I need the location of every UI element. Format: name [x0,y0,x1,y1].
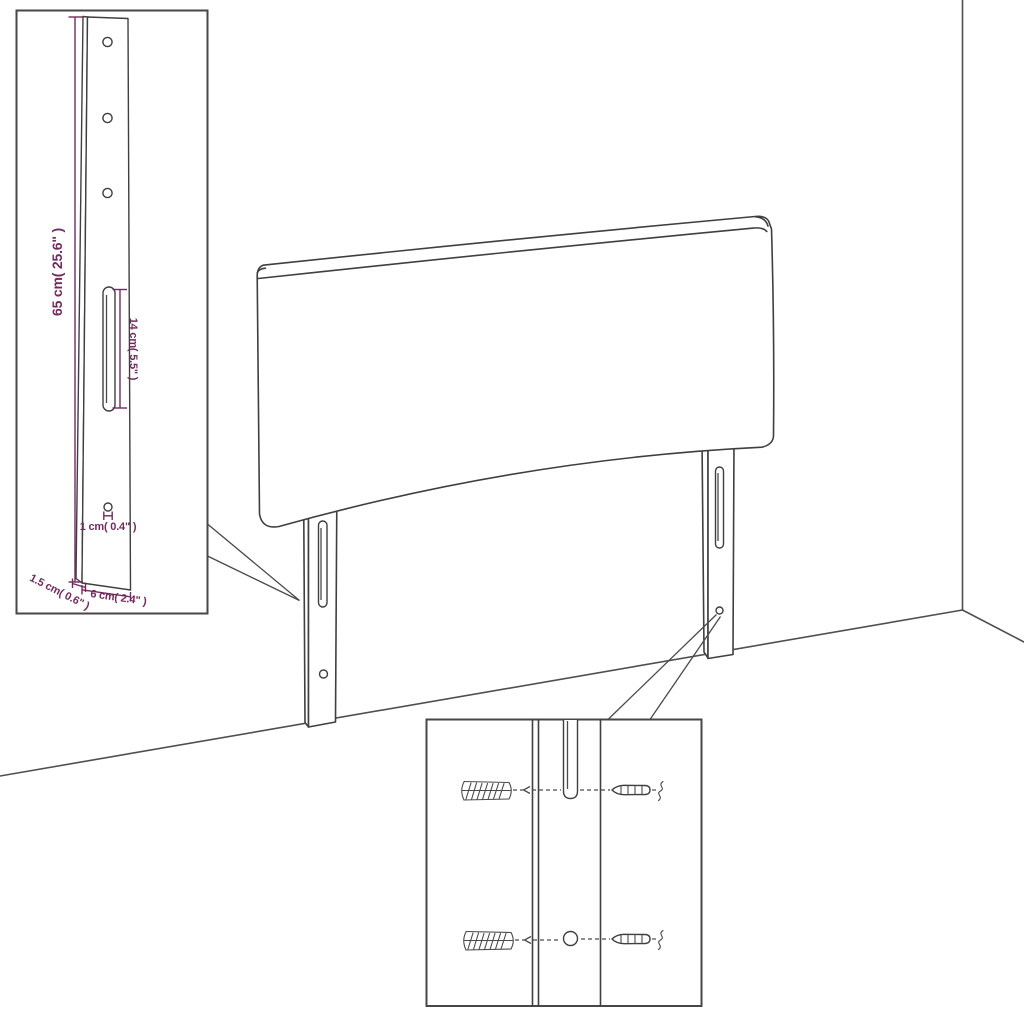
dim-total-height-label: 65 cm( 25.6" ) [49,228,65,316]
right-leg-slot [716,467,724,548]
inset-leg-screw-hole [564,932,578,946]
left-leg-screw-hole [320,670,328,678]
dim-hole-label: 1 cm( 0.4" ) [80,521,137,533]
assembly-diagram: 65 cm( 25.6" ) 14 cm( 5.5" ) 1 cm( 0.4" … [0,0,1024,1024]
headboard-outline [257,216,774,527]
inset-leg-small-hole [104,503,112,511]
inset-leg-hole [103,188,112,197]
callout-line [608,615,717,720]
inset-leg-hole [103,37,112,46]
headboard-right-leg [702,438,734,659]
assembly-diagram-page: 65 cm( 25.6" ) 14 cm( 5.5" ) 1 cm( 0.4" … [0,0,1024,1024]
wall-mounting-inset [427,720,702,1007]
right-leg-screw-hole [716,607,723,614]
dim-slot-length-label: 14 cm( 5.5" ) [127,318,139,381]
inset-leg-slot [564,720,578,799]
inset-leg-slot [103,287,115,411]
left-leg-slot [319,521,328,607]
callout-lines-left-leg [208,524,300,601]
floor-line-right [963,610,1024,642]
leg-dimension-inset: 65 cm( 25.6" ) 14 cm( 5.5" ) 1 cm( 0.4" … [17,11,208,614]
inset-leg-hole [103,113,112,122]
headboard-panel [257,216,774,527]
